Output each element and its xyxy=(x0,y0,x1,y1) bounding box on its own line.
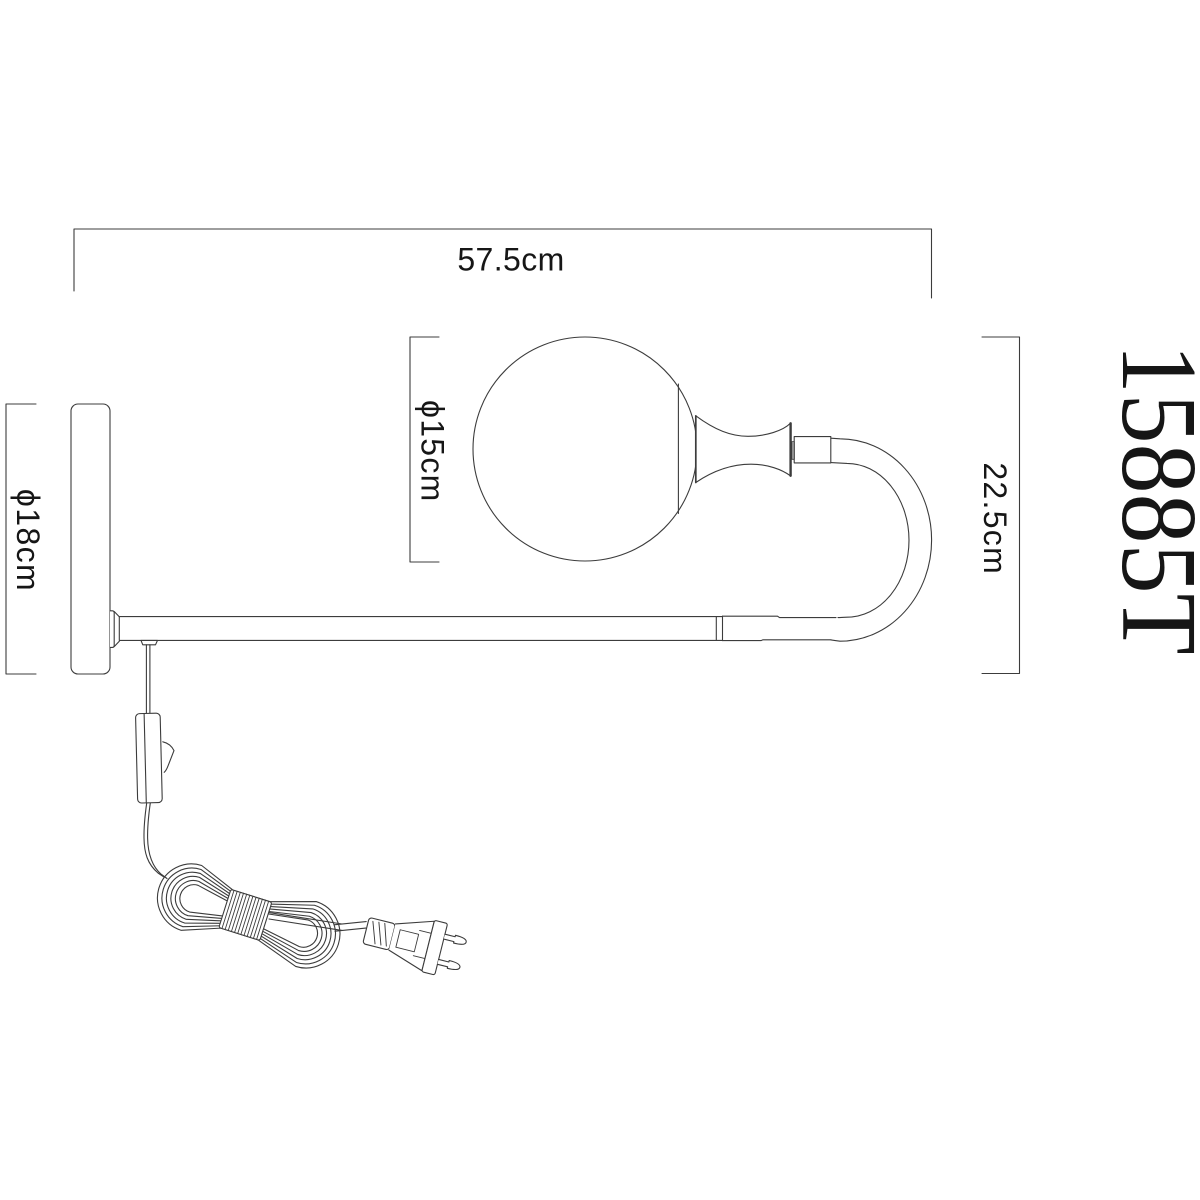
svg-text:22.5cm: 22.5cm xyxy=(977,462,1013,575)
svg-text:ϕ18cm: ϕ18cm xyxy=(10,489,46,592)
svg-text:57.5cm: 57.5cm xyxy=(457,242,564,278)
svg-text:ϕ15cm: ϕ15cm xyxy=(415,400,451,503)
svg-text:15885T: 15885T xyxy=(1099,344,1200,655)
